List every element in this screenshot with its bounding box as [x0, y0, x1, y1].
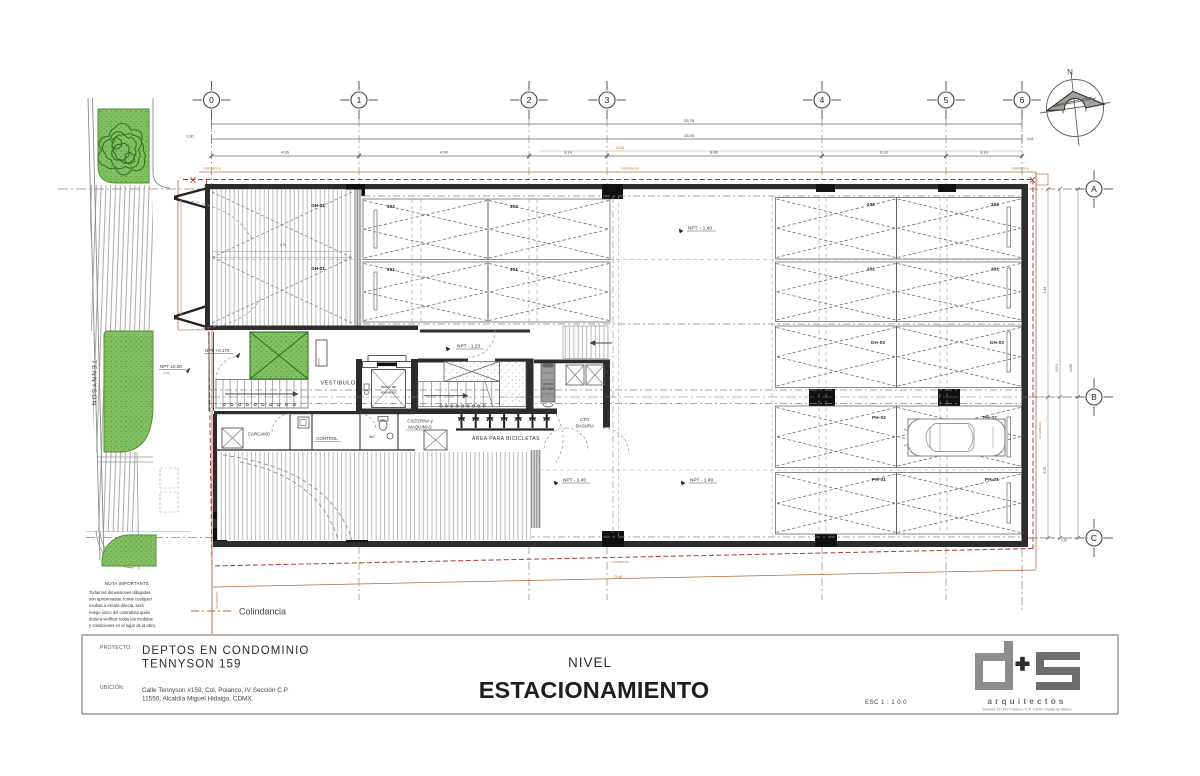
- svg-text:PROYECTO:: PROYECTO:: [100, 645, 132, 651]
- svg-text:A: A: [1091, 184, 1097, 194]
- svg-text:CARCAMO: CARCAMO: [248, 432, 271, 437]
- svg-text:GH-02: GH-02: [990, 340, 1005, 345]
- svg-text:colindancia: colindancia: [612, 560, 629, 564]
- svg-text:ESC 1 : 1 0 0: ESC 1 : 1 0 0: [865, 699, 907, 706]
- svg-text:medida a escala directa, s: medida a escala directa, será: [89, 603, 144, 608]
- svg-text:NPT ±0.00: NPT ±0.00: [160, 364, 182, 369]
- svg-text:11550, Alcaldía Miguel Hidalgo: 11550, Alcaldía Miguel Hidalgo, CDMX.: [142, 696, 254, 703]
- svg-text:CONTROL: CONTROL: [316, 436, 338, 441]
- svg-text:GH-01: GH-01: [311, 203, 325, 208]
- svg-text:Todas las dimensiones dibuj: Todas las dimensiones dibujadas: [89, 590, 150, 595]
- svg-text:NPT +0.175: NPT +0.175: [205, 348, 230, 353]
- svg-text:Calle Tennyson #159, Col. Pola: Calle Tennyson #159, Col. Polanco, IV Se…: [142, 687, 289, 694]
- svg-text:301: 301: [510, 267, 519, 272]
- svg-text:3: 3: [605, 95, 610, 105]
- svg-text:riesgo único del contratista q: riesgo único del contratista quién: [89, 610, 151, 615]
- svg-text:4.06: 4.06: [281, 150, 290, 155]
- svg-text:arquitectos: arquitectos: [987, 697, 1066, 706]
- svg-text:-0.04: -0.04: [163, 371, 170, 375]
- svg-text:colindancia: colindancia: [621, 167, 639, 171]
- svg-text:MAQUINAS: MAQUINAS: [408, 425, 431, 430]
- svg-text:NPT - 1.40: NPT - 1.40: [563, 478, 586, 484]
- svg-text:colindancia: colindancia: [203, 167, 221, 171]
- svg-text:colindancia: colindancia: [1011, 167, 1029, 171]
- svg-text:6.10: 6.10: [880, 150, 889, 155]
- svg-text:71.40: 71.40: [614, 575, 622, 579]
- svg-text:NPT - 1.23: NPT - 1.23: [457, 344, 480, 350]
- svg-text:4.90: 4.90: [440, 150, 449, 155]
- svg-text:Colindancia: Colindancia: [239, 607, 286, 617]
- svg-text:banca: banca: [317, 358, 321, 367]
- svg-text:202: 202: [991, 202, 1000, 207]
- svg-text:NPT. - 1.40: NPT. - 1.40: [688, 226, 712, 232]
- svg-text:son aproximadas, tomar cualqui: son aproximadas, tomar cualquier: [89, 597, 153, 602]
- svg-text:B: B: [1091, 392, 1097, 402]
- svg-text:elevador: elevador: [381, 390, 397, 395]
- svg-text:6: 6: [1020, 95, 1025, 105]
- svg-text:201: 201: [867, 267, 876, 272]
- svg-text:3.14: 3.14: [564, 150, 573, 155]
- svg-text:C: C: [1091, 533, 1097, 543]
- svg-text:2: 2: [527, 95, 532, 105]
- svg-text:WC: WC: [369, 435, 376, 439]
- svg-text:0.30: 0.30: [1061, 539, 1067, 543]
- svg-text:2.30: 2.30: [187, 135, 194, 139]
- svg-text:BASURA: BASURA: [576, 424, 594, 429]
- svg-text:NIVEL: NIVEL: [568, 655, 612, 670]
- svg-text:PH-01: PH-01: [872, 477, 886, 482]
- svg-text:25.79: 25.79: [684, 118, 695, 123]
- svg-text:GH-02: GH-02: [871, 340, 886, 345]
- svg-text:4.70: 4.70: [280, 243, 287, 247]
- svg-text:Sófocles 127 PH / Polanco / C.: Sófocles 127 PH / Polanco / C.P. 11540 /…: [982, 708, 1072, 712]
- svg-text:8.86: 8.86: [710, 150, 719, 155]
- svg-text:N: N: [1067, 68, 1073, 77]
- svg-text:4.48: 4.48: [1043, 287, 1047, 294]
- svg-text:1: 1: [357, 95, 362, 105]
- svg-text:202: 202: [867, 202, 876, 207]
- svg-text:0: 0: [209, 95, 214, 105]
- svg-text:201: 201: [991, 267, 1000, 272]
- svg-text:13.85: 13.85: [616, 146, 625, 150]
- svg-text:GH-01: GH-01: [311, 266, 325, 271]
- svg-text:VESTIBULO: VESTIBULO: [321, 381, 356, 387]
- svg-text:CTO.: CTO.: [580, 417, 590, 422]
- svg-text:302: 302: [387, 204, 396, 209]
- svg-text:23.00: 23.00: [684, 133, 695, 138]
- svg-text:14.86: 14.86: [1069, 364, 1073, 372]
- svg-text:DEPTOS EN CONDOMINIO: DEPTOS EN CONDOMINIO: [142, 645, 309, 657]
- svg-text:colindancia: colindancia: [215, 592, 219, 609]
- svg-text:PH-02: PH-02: [872, 415, 886, 420]
- svg-text:301: 301: [387, 267, 396, 272]
- svg-text:ducto de: ducto de: [381, 384, 397, 389]
- svg-text:deberá verificar todas las med: deberá verificar todas las medidas: [89, 616, 153, 621]
- svg-text:NOTA IMPORTANTE: NOTA IMPORTANTE: [105, 581, 149, 586]
- svg-text:carritos: carritos: [543, 382, 554, 386]
- svg-text:y condiciones en el lugar de l: y condiciones en el lugar de la obra.: [89, 623, 156, 628]
- svg-text:PH-01: PH-01: [985, 477, 999, 482]
- svg-text:de super: de super: [542, 387, 555, 391]
- svg-text:TENNYSON 159: TENNYSON 159: [142, 659, 241, 671]
- svg-text:3.10: 3.10: [980, 150, 989, 155]
- svg-text:NPT - 1.40: NPT - 1.40: [690, 478, 713, 484]
- svg-text:302: 302: [510, 204, 519, 209]
- svg-text:15.01: 15.01: [1055, 364, 1059, 372]
- svg-text:6.78: 6.78: [1043, 467, 1047, 474]
- svg-text:5: 5: [944, 95, 949, 105]
- svg-text:ESTACIONAMIENTO: ESTACIONAMIENTO: [479, 677, 710, 703]
- svg-text:CISTERNA y: CISTERNA y: [407, 419, 433, 424]
- svg-text:TENNYSON: TENNYSON: [90, 360, 97, 407]
- svg-text:3.04: 3.04: [1027, 137, 1034, 141]
- svg-text:4: 4: [820, 95, 825, 105]
- svg-text:colindancia: colindancia: [1038, 422, 1042, 439]
- svg-text:UBICIÓN:: UBICIÓN:: [100, 684, 125, 691]
- svg-text:AREA PARA BICICLETAS: AREA PARA BICICLETAS: [472, 436, 540, 442]
